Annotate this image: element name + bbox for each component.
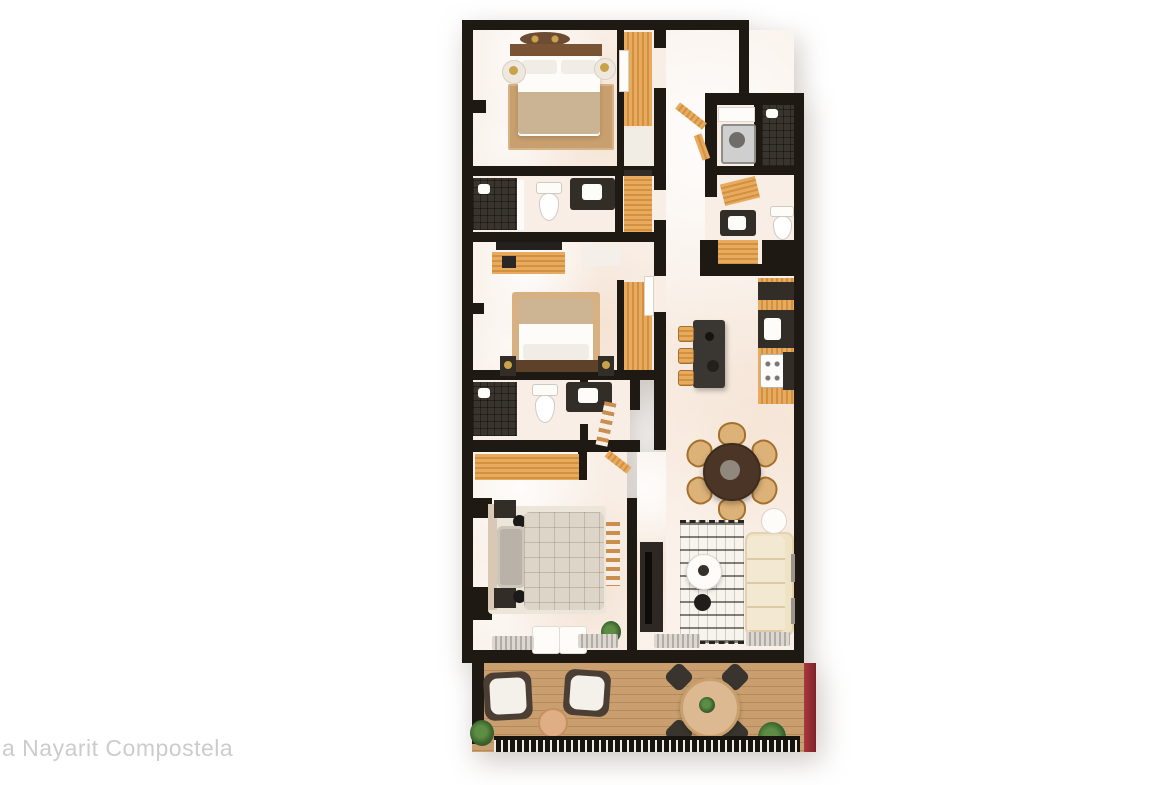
wall-bath2-bed3 <box>462 440 640 452</box>
door-opening-bath1 <box>654 190 666 220</box>
wall-right <box>794 93 804 663</box>
bed2-pillows <box>523 344 589 360</box>
bed3-curtain-right <box>578 634 618 648</box>
bed2-tv <box>496 242 562 250</box>
wing-closet <box>762 240 794 264</box>
terrace-plant-left <box>470 720 494 746</box>
wall-wing-left-b <box>700 240 718 264</box>
island-sink <box>707 360 719 372</box>
page-background: a Nayarit Compostela <box>0 0 1170 785</box>
terrace-table-plant <box>699 697 715 713</box>
bed2-coffee-machine <box>502 256 516 268</box>
master-pillow-right <box>561 60 596 74</box>
wall-stub-1 <box>462 100 486 113</box>
bed3-pillows <box>497 526 525 588</box>
lounge-chair-1-cushion <box>489 677 527 715</box>
wall-bottom <box>462 650 804 663</box>
master-lamp-left <box>509 66 518 75</box>
bed3-bench-cushion-1 <box>532 626 560 654</box>
kitchen-island <box>693 320 725 388</box>
bath2-showerhead <box>478 388 490 398</box>
side-stool <box>694 594 711 611</box>
terrace-accent-wall <box>804 663 816 752</box>
island-faucet <box>705 332 714 341</box>
closet-dresser <box>624 170 652 232</box>
living-curtain-right <box>746 632 790 646</box>
wall-corridor-right <box>739 20 749 97</box>
wall-corridor-left <box>654 30 666 450</box>
bed2-lamp-left <box>504 361 512 369</box>
laundry-counter <box>718 107 755 122</box>
kitchen-fridge <box>758 282 794 300</box>
master-door-leaf <box>619 50 629 92</box>
wall-nook <box>630 372 640 410</box>
wall-bed3-right <box>627 498 637 650</box>
kitchen-stove <box>760 354 785 388</box>
bed3-nightstand-top <box>494 500 516 518</box>
bath1-sink <box>582 184 602 200</box>
bed2-headboard <box>510 360 602 372</box>
bed2-bench <box>582 246 620 266</box>
master-closet-shelf <box>624 128 652 164</box>
bar-stool-2 <box>678 348 694 364</box>
terrace-side-table <box>538 708 568 738</box>
tv <box>645 552 652 624</box>
floorplan-render <box>458 14 816 760</box>
sofa-cushions <box>747 536 785 632</box>
bath1-shower-glass <box>517 180 524 230</box>
dining-centerpiece <box>720 460 740 480</box>
lounge-chair-2-cushion <box>569 675 605 711</box>
wall-wing-mid <box>717 166 794 175</box>
wall-left <box>462 20 473 663</box>
washer-door <box>729 132 745 148</box>
master-headboard <box>510 44 602 56</box>
bath1-showerhead <box>478 184 490 194</box>
bed3-curtain-left <box>492 636 534 650</box>
master-lamp-right <box>600 63 609 72</box>
wing-cabinet <box>718 240 758 264</box>
dining-chair-4 <box>718 498 746 522</box>
wall-wing-bottom <box>700 264 804 276</box>
kitchen-sink <box>764 318 781 340</box>
wall-top <box>462 20 749 30</box>
master-blanket <box>518 92 600 134</box>
wall-closet2 <box>617 280 624 370</box>
guest-sink <box>728 216 746 230</box>
watermark-text: a Nayarit Compostela <box>2 735 233 762</box>
coffee-table-decor <box>698 565 709 576</box>
guest-showerhead <box>766 109 778 118</box>
wall-bath1-right <box>615 176 623 232</box>
kitchen-counter-dark <box>783 352 794 390</box>
bar-stool-1 <box>678 326 694 342</box>
terrace-railing <box>494 736 800 752</box>
wall-bath1-bed2 <box>462 232 666 242</box>
master-pillow-left <box>522 60 557 74</box>
sofa-frame-handle-2 <box>791 598 795 624</box>
wall-stub-5 <box>578 452 587 480</box>
bath2-sink <box>578 388 598 403</box>
door-opening-bed2 <box>654 276 666 312</box>
bed2-lamp-right <box>602 361 610 369</box>
sofa-frame-handle-1 <box>791 554 795 582</box>
bed2-blanket <box>519 298 593 324</box>
living-curtain-left <box>654 634 700 648</box>
bed3-wardrobe <box>475 454 579 480</box>
wall-stub-2 <box>462 303 484 314</box>
wall-wing-top <box>705 93 804 105</box>
bar-stool-3 <box>678 370 694 386</box>
bed3-ladder-rack <box>606 522 620 586</box>
bed2-door-leaf <box>644 276 654 316</box>
bed3-duvet <box>524 512 604 610</box>
sofa-side-table <box>761 508 787 534</box>
door-opening-master <box>654 48 666 88</box>
